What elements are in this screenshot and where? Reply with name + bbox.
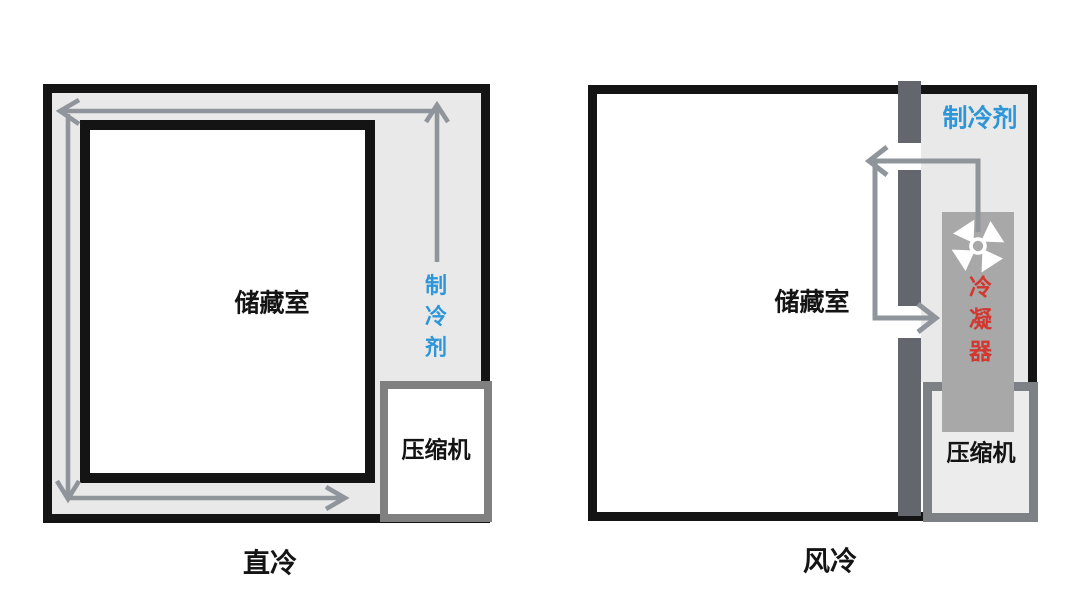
- direct-cooling-caption: 直冷: [243, 551, 297, 578]
- fan-cooling-caption: 风冷: [803, 549, 857, 576]
- direct-storage-room-label: 储藏室: [234, 292, 309, 317]
- direct-compressor-label: 压缩机: [402, 439, 471, 462]
- partition-bar-middle: [898, 170, 921, 306]
- cooling-comparison-diagram: 储藏室 制冷剂 压缩机 直冷 储藏室 制冷剂 冷凝器 压缩机 风冷: [0, 0, 1080, 608]
- fan-compressor-label: 压缩机: [947, 442, 1016, 465]
- fan-storage-room-label: 储藏室: [774, 291, 849, 316]
- fan-refrigerant-label: 制冷剂: [942, 107, 1017, 132]
- condenser-label: 冷凝器: [967, 275, 990, 371]
- direct-refrigerant-label: 制冷剂: [423, 274, 445, 367]
- partition-bar-bottom: [898, 338, 921, 516]
- direct-storage-room: [80, 120, 375, 483]
- partition-bar-top: [898, 81, 921, 143]
